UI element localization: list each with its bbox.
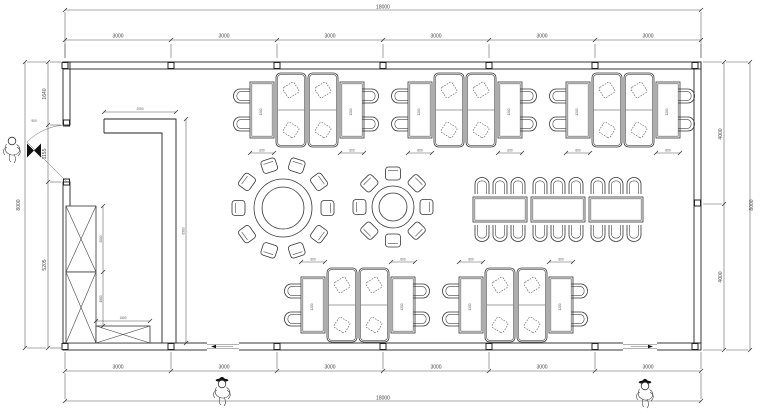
column-marker	[695, 200, 701, 206]
dim-label: 600	[507, 149, 513, 153]
booth-group: 12001200600600	[550, 73, 695, 155]
chair	[232, 201, 245, 216]
column-marker	[168, 344, 174, 350]
door-leaf	[27, 142, 67, 182]
partition-layer: 20006300200018001500	[66, 107, 188, 345]
chair	[569, 225, 583, 242]
chair	[285, 312, 302, 326]
dim-label: 2000	[99, 235, 103, 242]
chair	[413, 284, 430, 298]
chair	[627, 178, 641, 195]
chair	[392, 89, 409, 103]
chair	[511, 225, 525, 242]
chair	[475, 225, 489, 242]
person-figure	[213, 377, 230, 406]
booth-sofa	[308, 73, 338, 147]
chair	[260, 242, 278, 259]
door-marker-bowtie	[34, 144, 41, 158]
dim-label: 3000	[112, 365, 123, 371]
chair	[407, 173, 427, 193]
chair	[420, 200, 433, 215]
dim-label: 3000	[218, 34, 229, 40]
dim-label: 3000	[536, 365, 547, 371]
dim-label: 600	[558, 258, 564, 262]
dim-left-segment-3: 5205	[42, 259, 48, 270]
chair	[591, 225, 605, 242]
chair	[591, 178, 605, 195]
dim-label: 1200	[468, 303, 472, 310]
booth-sofa	[327, 268, 357, 342]
chair	[520, 89, 537, 103]
dim-label: 6300	[182, 227, 186, 234]
chair	[551, 225, 565, 242]
banquet-table	[473, 178, 643, 242]
column-marker	[692, 63, 698, 69]
column-marker	[62, 63, 68, 69]
chair	[571, 284, 588, 298]
chair	[392, 117, 409, 131]
dim-label: 600	[310, 258, 316, 262]
dim-label: 1500	[119, 316, 126, 320]
column-marker	[274, 63, 280, 69]
dim-label: 3000	[218, 365, 229, 371]
floor-plan-drawing: 20006300200018001500 1200120060060012001…	[0, 0, 772, 414]
booth-group: 12001200600600	[443, 258, 588, 343]
partition-wall	[104, 119, 176, 343]
dim-label: 1200	[259, 108, 263, 115]
dim-label: 1200	[665, 108, 669, 115]
person-figure	[636, 379, 653, 408]
dim-label: 3000	[324, 365, 335, 371]
dim-left-overall: 8000	[16, 199, 22, 210]
column-marker	[486, 63, 492, 69]
booth-group: 12001200600600	[234, 73, 379, 155]
chair	[359, 173, 379, 193]
booth-sofa	[624, 73, 654, 147]
chair	[551, 178, 565, 195]
dim-label: 600	[259, 149, 265, 153]
dim-label: 1200	[349, 108, 353, 115]
chair	[362, 117, 379, 131]
chair	[569, 178, 583, 195]
dim-label: 1200	[558, 303, 562, 310]
dim-label: 600	[665, 149, 671, 153]
booth-group: 12001200600600	[392, 73, 537, 155]
chair	[362, 89, 379, 103]
chair	[475, 178, 489, 195]
chair	[511, 178, 525, 195]
dim-label: 3000	[430, 365, 441, 371]
chair	[443, 284, 460, 298]
dining-table	[531, 197, 585, 222]
door-swing-arc	[27, 125, 67, 142]
chair	[678, 117, 695, 131]
dim-door-width: 900	[31, 119, 37, 123]
chair	[359, 221, 379, 241]
dim-right-segment-1: 4000	[718, 128, 724, 139]
dim-label: 3000	[642, 34, 653, 40]
dim-left-segment-1: 1640	[42, 88, 48, 99]
person-figure	[3, 137, 20, 163]
dim-label: 1200	[400, 303, 404, 310]
dim-top-overall: 18000	[376, 5, 390, 11]
booth-sofa	[517, 268, 547, 342]
chair	[609, 225, 623, 242]
chair	[678, 89, 695, 103]
column-marker	[692, 344, 698, 350]
chair	[237, 224, 256, 244]
column-marker	[380, 344, 386, 350]
chair	[285, 284, 302, 298]
chair	[309, 224, 328, 244]
chair	[550, 89, 567, 103]
chair	[627, 225, 641, 242]
chair	[520, 117, 537, 131]
dim-label: 1800	[99, 295, 103, 302]
chair	[407, 221, 427, 241]
column-marker	[168, 63, 174, 69]
dim-label: 3000	[430, 34, 441, 40]
column-marker	[592, 63, 598, 69]
booth-group: 12001200600600	[285, 258, 430, 343]
chair	[234, 117, 251, 131]
chair	[609, 178, 623, 195]
booth-sofa	[276, 73, 306, 147]
dim-label: 600	[575, 149, 581, 153]
round-table-small	[353, 167, 433, 247]
dim-right-overall: 8000	[749, 199, 755, 210]
column-marker	[380, 63, 386, 69]
column-marker	[62, 344, 68, 350]
dining-table	[589, 197, 643, 222]
dim-label: 1200	[507, 108, 511, 115]
dim-right-segment-2: 4000	[718, 271, 724, 282]
furniture-layer: 1200120060060012001200600600120012006006…	[232, 73, 695, 342]
booth-sofa	[592, 73, 622, 147]
dim-label: 600	[417, 149, 423, 153]
booth-sofa	[466, 73, 496, 147]
dim-label: 600	[349, 149, 355, 153]
chair	[288, 157, 306, 174]
chair	[309, 172, 328, 192]
dim-label: 2000	[136, 107, 143, 111]
column-marker	[592, 344, 598, 350]
dim-label: 600	[400, 258, 406, 262]
booth-sofa	[485, 268, 515, 342]
dim-label: 1200	[575, 108, 579, 115]
chair	[533, 225, 547, 242]
dim-left-segment-2: 1155	[42, 148, 48, 159]
wall-left-upper	[63, 62, 70, 125]
chair	[234, 89, 251, 103]
chair	[353, 200, 366, 215]
chair	[550, 117, 567, 131]
dim-bottom-overall: 18000	[376, 396, 390, 402]
dim-label: 3000	[324, 34, 335, 40]
booth-sofa	[359, 268, 389, 342]
chair	[288, 242, 306, 259]
chair	[237, 172, 256, 192]
chair	[533, 178, 547, 195]
chair	[493, 225, 507, 242]
dim-label: 1200	[310, 303, 314, 310]
chair	[321, 201, 334, 216]
dim-label: 3000	[112, 34, 123, 40]
dim-label: 600	[468, 258, 474, 262]
chair	[413, 312, 430, 326]
chair	[386, 167, 401, 180]
dim-label: 3000	[642, 365, 653, 371]
column-marker	[274, 344, 280, 350]
chair	[571, 312, 588, 326]
dim-label: 1200	[417, 108, 421, 115]
round-table-large	[232, 157, 334, 259]
dim-label: 3000	[536, 34, 547, 40]
chair	[443, 312, 460, 326]
chair	[386, 234, 401, 247]
booth-sofa	[434, 73, 464, 147]
chair	[493, 178, 507, 195]
chair	[260, 157, 278, 174]
floor-plan-canvas: 20006300200018001500 1200120060060012001…	[0, 0, 772, 414]
column-marker	[486, 344, 492, 350]
dining-table	[473, 197, 527, 222]
